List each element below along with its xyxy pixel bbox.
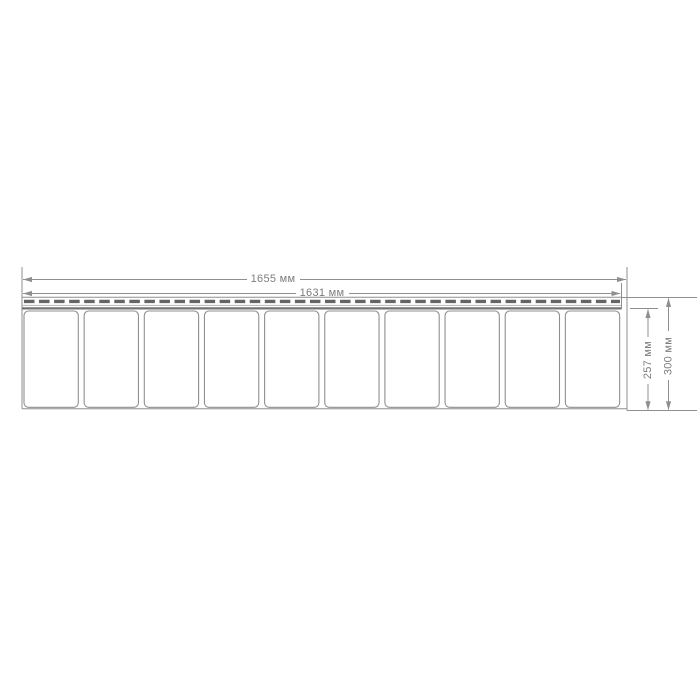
panel-section xyxy=(265,311,319,407)
panel-section xyxy=(385,311,439,407)
arrow-down-icon xyxy=(666,401,671,410)
dim-total-height-label: 300 мм xyxy=(663,337,675,375)
panel-section xyxy=(84,311,138,407)
arrow-down-icon xyxy=(645,401,650,410)
dim-total-length-label: 1655 мм xyxy=(251,273,296,285)
product-image-canvas: 1655 мм 1631 мм 257 мм 300 мм xyxy=(0,0,700,700)
arrow-left-icon xyxy=(23,277,32,282)
panel-section xyxy=(325,311,379,407)
arrow-left-icon xyxy=(23,291,32,296)
panel-section xyxy=(505,311,559,407)
arrow-up-icon xyxy=(666,298,671,307)
arrow-up-icon xyxy=(645,309,650,318)
panel-technical-drawing: 1655 мм 1631 мм 257 мм 300 мм xyxy=(0,0,700,700)
panel-section xyxy=(445,311,499,407)
panel-section xyxy=(204,311,258,407)
panel-sections xyxy=(24,311,620,407)
dim-working-length-label: 1631 мм xyxy=(300,287,345,299)
dim-total-height: 300 мм xyxy=(622,298,697,411)
panel-section xyxy=(565,311,619,407)
arrow-right-icon xyxy=(617,277,626,282)
panel-section xyxy=(144,311,198,407)
panel-section xyxy=(24,311,78,407)
arrow-right-icon xyxy=(612,291,621,296)
dim-total-length: 1655 мм xyxy=(23,273,626,285)
dim-panel-height-label: 257 мм xyxy=(642,341,654,379)
dim-panel-height: 257 мм xyxy=(630,309,658,411)
